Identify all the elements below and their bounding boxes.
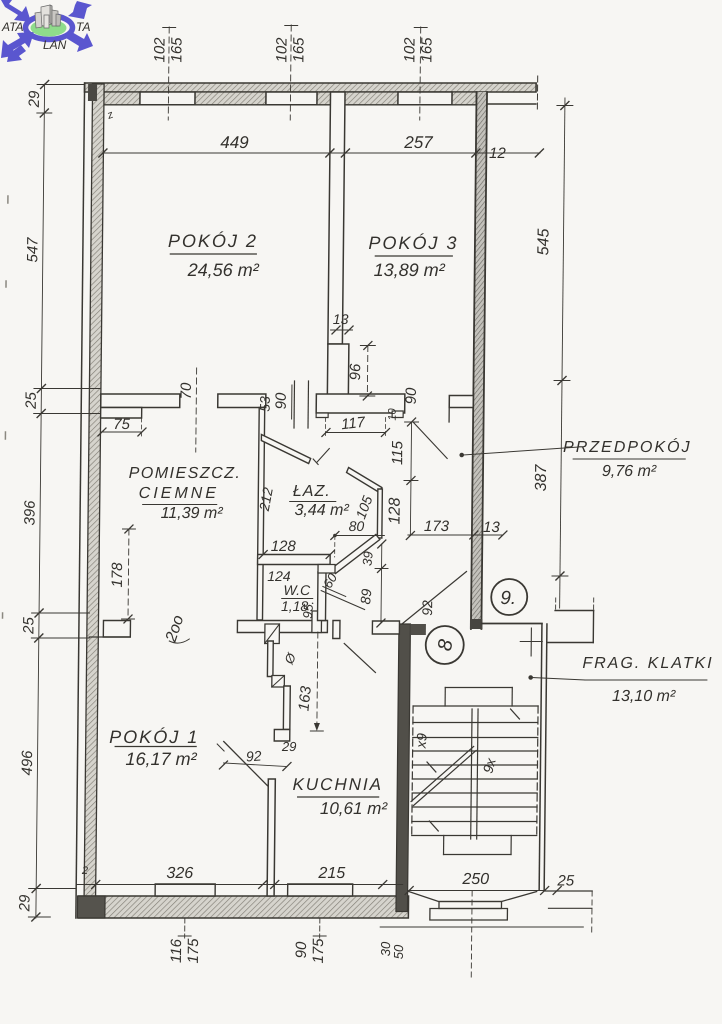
svg-text:13: 13 bbox=[333, 311, 349, 327]
svg-text:29: 29 bbox=[281, 739, 297, 754]
svg-text:124: 124 bbox=[267, 568, 291, 584]
svg-text:96: 96 bbox=[347, 363, 364, 380]
svg-text:173: 173 bbox=[424, 518, 450, 535]
svg-text:POKÓJ 1: POKÓJ 1 bbox=[109, 726, 199, 747]
svg-text:70: 70 bbox=[178, 382, 195, 399]
svg-text:102: 102 bbox=[151, 37, 168, 63]
svg-text:FRAG. KLATKI: FRAG. KLATKI bbox=[582, 655, 713, 672]
svg-text:115: 115 bbox=[389, 440, 406, 465]
svg-text:POKÓJ 3: POKÓJ 3 bbox=[368, 232, 458, 253]
svg-text:215: 215 bbox=[317, 865, 345, 882]
svg-text:KUCHNIA: KUCHNIA bbox=[292, 775, 383, 794]
svg-text:10: 10 bbox=[387, 408, 399, 421]
svg-text:102: 102 bbox=[401, 37, 418, 63]
svg-text:50: 50 bbox=[391, 944, 406, 959]
svg-text:POMIESZCZ.: POMIESZCZ. bbox=[129, 465, 242, 482]
svg-text:25: 25 bbox=[23, 392, 40, 410]
svg-text:250: 250 bbox=[461, 871, 489, 888]
svg-text:25: 25 bbox=[20, 617, 37, 635]
svg-text:117: 117 bbox=[340, 414, 366, 433]
svg-text:496: 496 bbox=[19, 750, 36, 776]
svg-text:387: 387 bbox=[533, 464, 550, 492]
svg-text:11,39 m²: 11,39 m² bbox=[161, 505, 224, 522]
svg-text:175: 175 bbox=[185, 938, 202, 964]
svg-text:128: 128 bbox=[271, 538, 297, 555]
svg-text:547: 547 bbox=[24, 237, 41, 263]
svg-text:257: 257 bbox=[403, 133, 433, 152]
svg-text:ATA: ATA bbox=[1, 20, 24, 34]
svg-text:9,76 m²: 9,76 m² bbox=[602, 463, 657, 480]
svg-text:13: 13 bbox=[483, 519, 501, 536]
svg-text:2: 2 bbox=[81, 865, 88, 877]
svg-text:TA: TA bbox=[76, 20, 90, 34]
svg-text:13,89 m²: 13,89 m² bbox=[374, 260, 446, 280]
svg-text:CIEMNE: CIEMNE bbox=[139, 485, 219, 502]
svg-text:29: 29 bbox=[16, 894, 33, 912]
svg-text:90: 90 bbox=[293, 941, 310, 958]
svg-text:90: 90 bbox=[273, 392, 290, 409]
svg-text:545: 545 bbox=[535, 229, 552, 256]
svg-text:90: 90 bbox=[403, 387, 420, 404]
svg-text:x9: x9 bbox=[412, 732, 429, 749]
svg-text:16,17 m²: 16,17 m² bbox=[125, 749, 197, 769]
svg-text:396: 396 bbox=[21, 500, 38, 526]
svg-text:449: 449 bbox=[220, 133, 249, 152]
svg-text:80: 80 bbox=[349, 518, 365, 534]
svg-text:25: 25 bbox=[556, 873, 575, 890]
svg-text:92: 92 bbox=[419, 600, 435, 616]
svg-text:175: 175 bbox=[310, 938, 327, 964]
svg-text:24,56 m²: 24,56 m² bbox=[187, 260, 260, 280]
svg-text:92: 92 bbox=[245, 747, 262, 764]
svg-text:163: 163 bbox=[296, 685, 315, 712]
svg-text:10,61 m²: 10,61 m² bbox=[320, 799, 389, 818]
svg-text:102: 102 bbox=[273, 37, 290, 63]
svg-text:53: 53 bbox=[257, 396, 273, 412]
svg-text:128: 128 bbox=[386, 498, 403, 525]
svg-text:39: 39 bbox=[359, 551, 375, 567]
svg-text:PRZEDPOKÓJ: PRZEDPOKÓJ bbox=[563, 437, 692, 456]
svg-text:89: 89 bbox=[357, 588, 374, 605]
svg-text:W.C: W.C bbox=[283, 582, 311, 598]
svg-text:LAN: LAN bbox=[43, 38, 67, 52]
svg-text:POKÓJ 2: POKÓJ 2 bbox=[168, 230, 258, 251]
svg-text:165: 165 bbox=[290, 37, 307, 63]
svg-text:12: 12 bbox=[489, 145, 507, 162]
svg-text:165: 165 bbox=[168, 37, 185, 63]
svg-text:3,44 m²: 3,44 m² bbox=[294, 502, 349, 519]
svg-text:116: 116 bbox=[168, 938, 185, 963]
svg-text:29: 29 bbox=[26, 90, 43, 108]
svg-text:326: 326 bbox=[166, 865, 193, 882]
svg-text:ŁAZ.: ŁAZ. bbox=[293, 483, 331, 500]
svg-text:13,10 m²: 13,10 m² bbox=[612, 688, 676, 705]
svg-text:95.: 95. bbox=[300, 600, 317, 619]
svg-text:178: 178 bbox=[109, 562, 126, 588]
svg-text:9.: 9. bbox=[500, 588, 516, 609]
svg-text:75: 75 bbox=[113, 416, 131, 433]
